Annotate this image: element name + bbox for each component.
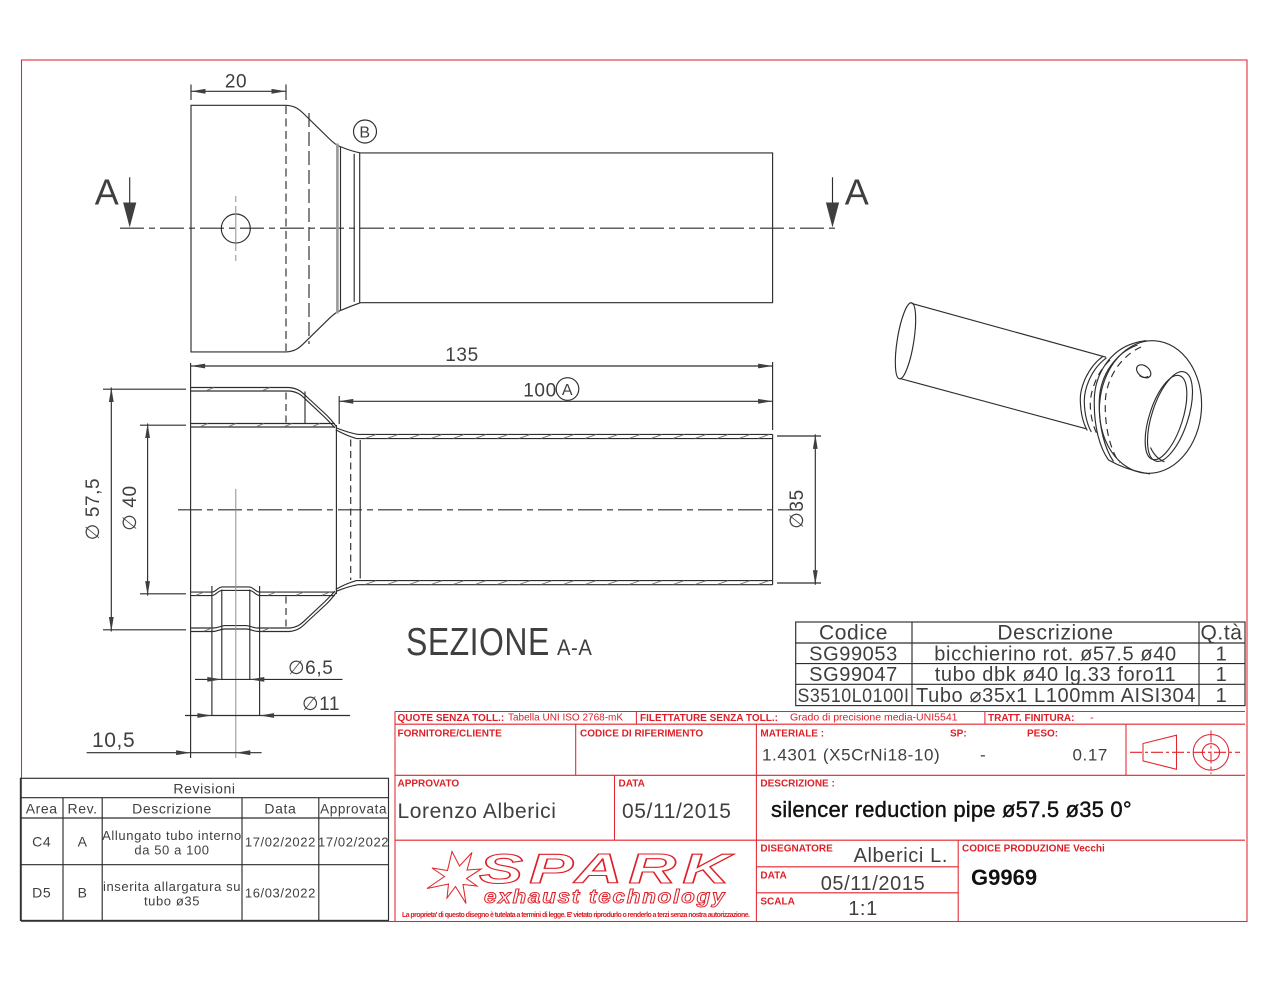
svg-text:20: 20: [225, 72, 247, 93]
svg-text:1: 1: [1216, 685, 1228, 707]
svg-text:∅11: ∅11: [302, 694, 340, 715]
svg-text:SPARK: SPARK: [479, 845, 736, 892]
svg-text:17/02/2022: 17/02/2022: [318, 835, 389, 850]
svg-text:∅6,5: ∅6,5: [288, 658, 333, 679]
svg-text:Revisioni: Revisioni: [173, 781, 235, 797]
svg-text:SG99053: SG99053: [809, 644, 898, 666]
svg-text:Codice: Codice: [819, 622, 888, 645]
svg-text:A: A: [78, 834, 88, 850]
svg-text:La proprieta' di questo disegn: La proprieta' di questo disegno è tutela…: [402, 912, 750, 919]
svg-text:SG99047: SG99047: [809, 664, 898, 686]
svg-text:QUOTE SENZA TOLL.:: QUOTE SENZA TOLL.:: [398, 713, 505, 724]
svg-text:135: 135: [445, 345, 479, 366]
svg-text:MATERIALE :: MATERIALE :: [760, 729, 824, 740]
svg-text:1: 1: [1216, 644, 1228, 666]
svg-text:17/02/2022: 17/02/2022: [245, 835, 316, 850]
svg-text:da 50 a 100: da 50 a 100: [134, 843, 209, 858]
svg-text:-: -: [980, 746, 986, 765]
svg-text:-: -: [1090, 712, 1094, 724]
svg-text:100: 100: [523, 381, 557, 402]
svg-text:silencer reduction pipe ø57.5: silencer reduction pipe ø57.5 ø35 0°: [771, 797, 1132, 822]
svg-text:∅35: ∅35: [787, 489, 808, 529]
svg-text:A: A: [562, 382, 573, 399]
svg-text:SCALA: SCALA: [760, 897, 794, 908]
svg-text:Q.tà: Q.tà: [1200, 622, 1242, 645]
svg-text:bicchierino rot. ø57.5 ø40: bicchierino rot. ø57.5 ø40: [934, 644, 1176, 666]
svg-text:05/11/2015: 05/11/2015: [821, 873, 926, 895]
svg-text:Alberici L.: Alberici L.: [854, 845, 948, 867]
svg-text:DATA: DATA: [760, 871, 786, 882]
svg-text:DESCRIZIONE :: DESCRIZIONE :: [760, 779, 834, 790]
svg-text:DATA: DATA: [619, 779, 645, 790]
svg-text:CODICE DI RIFERIMENTO: CODICE DI RIFERIMENTO: [580, 729, 703, 740]
svg-text:1.4301 (X5CrNi18-10): 1.4301 (X5CrNi18-10): [762, 746, 940, 765]
svg-text:PESO:: PESO:: [1027, 729, 1058, 740]
svg-text:APPROVATO: APPROVATO: [398, 779, 460, 790]
svg-text:Data: Data: [264, 801, 296, 817]
svg-text:Area: Area: [26, 801, 58, 817]
svg-text:S3510L0100I: S3510L0100I: [798, 686, 910, 707]
svg-text:inserita allargatura su: inserita allargatura su: [103, 879, 241, 894]
svg-text:Allungato tubo interno: Allungato tubo interno: [102, 828, 242, 843]
svg-text:Grado di precisione media-UNI5: Grado di precisione media-UNI5541: [790, 712, 958, 724]
svg-text:1: 1: [1216, 664, 1228, 686]
svg-text:Descrizione: Descrizione: [997, 622, 1113, 645]
svg-text:A: A: [845, 172, 870, 213]
svg-text:0.17: 0.17: [1073, 746, 1109, 765]
svg-text:DISEGNATORE: DISEGNATORE: [760, 844, 833, 855]
svg-text:exhaust technology: exhaust technology: [484, 887, 726, 908]
svg-text:10,5: 10,5: [92, 729, 135, 752]
svg-text:G9969: G9969: [971, 865, 1037, 890]
svg-text:∅ 40: ∅ 40: [120, 485, 141, 530]
svg-text:05/11/2015: 05/11/2015: [622, 800, 732, 823]
svg-text:A: A: [95, 172, 120, 213]
svg-text:16/03/2022: 16/03/2022: [245, 886, 316, 901]
svg-text:Tubo ⌀35x1 L100mm AISI304: Tubo ⌀35x1 L100mm AISI304: [916, 685, 1196, 707]
svg-text:1:1: 1:1: [848, 898, 878, 920]
svg-text:Approvata: Approvata: [320, 802, 387, 817]
svg-text:A-A: A-A: [557, 636, 593, 660]
svg-text:B: B: [359, 125, 370, 142]
svg-text:Rev.: Rev.: [68, 801, 98, 817]
svg-text:SEZIONE: SEZIONE: [406, 620, 550, 664]
svg-text:tubo ø35: tubo ø35: [144, 894, 200, 909]
svg-text:FILETTATURE SENZA TOLL.:: FILETTATURE SENZA TOLL.:: [640, 713, 778, 724]
svg-text:tubo dbk ø40 lg.33 foro11: tubo dbk ø40 lg.33 foro11: [935, 664, 1176, 686]
svg-text:SP:: SP:: [950, 729, 967, 740]
svg-text:∅ 57,5: ∅ 57,5: [83, 478, 104, 540]
svg-text:TRATT. FINITURA:: TRATT. FINITURA:: [988, 713, 1074, 724]
svg-text:FORNITORE/CLIENTE: FORNITORE/CLIENTE: [398, 729, 503, 740]
svg-text:Lorenzo Alberici: Lorenzo Alberici: [398, 800, 557, 823]
svg-text:C4: C4: [32, 834, 51, 850]
svg-text:B: B: [78, 885, 88, 901]
svg-text:Descrizione: Descrizione: [132, 801, 212, 817]
svg-text:Tabella UNI ISO 2768-mK: Tabella UNI ISO 2768-mK: [508, 713, 623, 724]
svg-text:CODICE PRODUZIONE Vecchi: CODICE PRODUZIONE Vecchi: [962, 844, 1105, 855]
svg-text:D5: D5: [32, 885, 51, 901]
